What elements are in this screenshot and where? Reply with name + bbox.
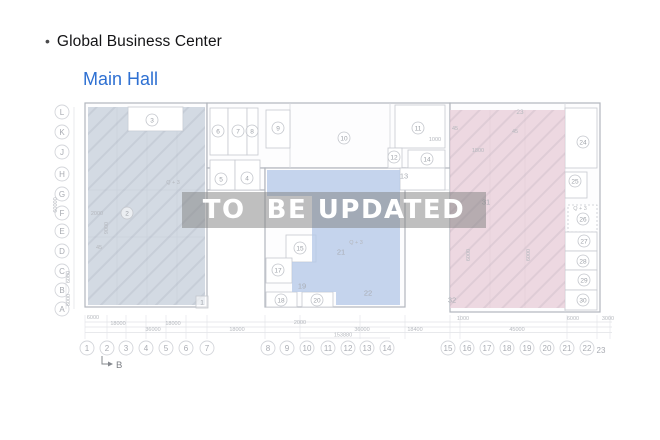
axis-letter: J	[60, 148, 64, 157]
axis-number: 13	[363, 344, 372, 353]
col-axis-3: 3	[119, 341, 133, 355]
room-number-text: 9	[276, 125, 280, 132]
room-label-10: 10	[338, 132, 350, 144]
room-label-24: 24	[577, 136, 589, 148]
room-number-text: 15	[296, 245, 304, 252]
row-axis-D: D	[55, 244, 69, 258]
room-label-5: 5	[215, 173, 227, 185]
col-axis-19: 19	[520, 341, 534, 355]
room-number-text: 22	[364, 288, 372, 297]
dimension-text-vertical: 9000	[104, 222, 110, 234]
room-number-text: 12	[390, 154, 398, 161]
axis-letter: B	[59, 286, 64, 295]
axis-number: 5	[164, 344, 169, 353]
room-label-11: 11	[412, 122, 424, 134]
dimension-text: 18000	[165, 321, 180, 327]
section-marker-b: B	[102, 356, 122, 371]
col-axis-2: 2	[100, 341, 114, 355]
plan-annotation: 23	[516, 109, 524, 116]
col-axis-23: 23	[597, 346, 606, 355]
section-marker-label: B	[116, 360, 122, 371]
room-number-text: 3	[150, 117, 154, 124]
room-label-26: 26	[577, 213, 589, 225]
col-axis-8: 8	[261, 341, 275, 355]
col-axis-12: 12	[341, 341, 355, 355]
col-axis-14: 14	[380, 341, 394, 355]
row-axis-H: H	[55, 167, 69, 181]
room-number-text: 1	[200, 299, 204, 306]
axis-number: 11	[324, 344, 333, 353]
axis-number: 19	[523, 344, 532, 353]
axis-number: 3	[124, 344, 129, 353]
plan-annotation: 45	[512, 129, 518, 135]
axis-number: 22	[583, 344, 592, 353]
plan-annotation: 1000	[429, 137, 441, 143]
dimension-text: 2000	[294, 320, 306, 326]
axis-letter: E	[59, 227, 64, 236]
dimension-text-vertical: 6000	[526, 249, 532, 261]
axis-number: 7	[205, 344, 210, 353]
room-number-text: 20	[313, 297, 321, 304]
plan-annotation: Q + 3	[349, 240, 363, 246]
room-label-20: 20	[311, 294, 323, 306]
room-label-13: 13	[400, 171, 408, 180]
dimension-text: 18400	[407, 327, 422, 333]
dimension-text: 18000	[110, 321, 125, 327]
dimension-text: 36000	[354, 327, 369, 333]
col-axis-17: 17	[480, 341, 494, 355]
dimension-text: 1000	[457, 316, 469, 322]
col-axis-4: 4	[139, 341, 153, 355]
room-number-text: 26	[579, 216, 587, 223]
axis-number: 20	[543, 344, 552, 353]
room-number-text: 18	[277, 297, 285, 304]
axis-number: 21	[563, 344, 572, 353]
col-axis-6: 6	[179, 341, 193, 355]
axis-number: 18	[503, 344, 512, 353]
col-axis-10: 10	[300, 341, 314, 355]
watermark-text: TO BE UPDATED	[203, 195, 466, 225]
room-number-text: 28	[579, 258, 587, 265]
axis-letter: A	[59, 305, 65, 314]
col-axis-1: 1	[80, 341, 94, 355]
room-number-text: 17	[274, 267, 282, 274]
room-number-text: 5	[219, 176, 223, 183]
plan-annotation: 1800	[472, 148, 484, 154]
room-number-text: 10	[340, 135, 348, 142]
room-number-text: 29	[580, 277, 588, 284]
axis-number: 12	[344, 344, 353, 353]
room-label-32: 32	[448, 295, 456, 304]
axis-number: 8	[266, 344, 271, 353]
col-axis-5: 5	[159, 341, 173, 355]
dimension-text: 6000	[567, 316, 579, 322]
col-axis-16: 16	[460, 341, 474, 355]
room-label-1: 1	[196, 296, 208, 308]
row-axis-K: K	[55, 125, 69, 139]
room-number-text: 24	[579, 139, 587, 146]
watermark-banner: TO BE UPDATED	[182, 192, 486, 228]
axis-number: 4	[144, 344, 149, 353]
room-number-text: 11	[415, 125, 422, 132]
axis-number: 6	[184, 344, 189, 353]
room-number-text: 14	[423, 156, 431, 163]
plan-annotation: 45	[452, 126, 458, 132]
room-number-text: 8	[250, 128, 254, 135]
col-axis-22: 22	[580, 341, 594, 355]
col-axis-7: 7	[200, 341, 214, 355]
room-label-25: 25	[569, 175, 581, 187]
axis-number: 1	[85, 344, 90, 353]
row-axis-J: J	[55, 145, 69, 159]
col-axis-20: 20	[540, 341, 554, 355]
row-axis-L: L	[55, 105, 69, 119]
room-label-14: 14	[421, 153, 433, 165]
axis-number: 15	[444, 344, 453, 353]
room-number-text: 4	[245, 175, 249, 182]
dimension-text-vertical: 6000	[66, 271, 72, 283]
room-label-17: 17	[272, 264, 284, 276]
dimension-text: 45000	[509, 327, 524, 333]
room-label-12: 12	[388, 151, 400, 163]
dimension-text-vertical: 60000	[53, 197, 59, 212]
col-axis-18: 18	[500, 341, 514, 355]
room-number-text: 25	[571, 178, 579, 185]
axis-letter: F	[60, 209, 65, 218]
axis-number: 10	[303, 344, 312, 353]
room-label-4: 4	[241, 172, 253, 184]
room-label-6: 6	[212, 125, 224, 137]
plan-annotation: Q + 3	[573, 206, 587, 212]
axis-letter: C	[59, 267, 65, 276]
plan-annotation: Q + 3	[166, 180, 180, 186]
room-label-22: 22	[364, 288, 372, 297]
dimension-text-vertical: 6000	[466, 249, 472, 261]
room-label-29: 29	[578, 274, 590, 286]
axis-number: 16	[463, 344, 472, 353]
room-number-text: 21	[337, 247, 345, 256]
room-number-text: 19	[298, 281, 306, 290]
room-label-9: 9	[272, 122, 284, 134]
room-label-19: 19	[298, 281, 306, 290]
axis-letter: K	[59, 128, 65, 137]
room-label-8: 8	[246, 125, 258, 137]
axis-letter: H	[59, 170, 65, 179]
col-axis-11: 11	[321, 341, 335, 355]
dimension-text: 36000	[145, 327, 160, 333]
axis-letter: G	[59, 190, 65, 199]
room-label-30: 30	[577, 294, 589, 306]
col-axis-9: 9	[280, 341, 294, 355]
row-axis-E: E	[55, 224, 69, 238]
axis-number: 9	[285, 344, 290, 353]
room-label-28: 28	[577, 255, 589, 267]
room-number-text: 32	[448, 295, 456, 304]
room-number-text: 30	[579, 297, 587, 304]
dimension-text: 153880	[334, 333, 352, 339]
room-number-text: 27	[580, 238, 588, 245]
axis-letter: D	[59, 247, 65, 256]
axis-letter: L	[60, 108, 65, 117]
col-axis-15: 15	[441, 341, 455, 355]
section-marker-arrow-icon	[108, 362, 113, 367]
col-axis-21: 21	[560, 341, 574, 355]
dimension-text: 3000	[602, 316, 614, 322]
dimension-text-vertical: 6000	[66, 294, 72, 306]
room-label-2: 2	[121, 207, 133, 219]
dimension-text: 18000	[229, 327, 244, 333]
section-marker-line	[102, 356, 108, 364]
plan-annotation: 45	[96, 245, 102, 251]
room-label-18: 18	[275, 294, 287, 306]
plan-annotation: 2000	[91, 211, 103, 217]
room-label-21: 21	[337, 247, 345, 256]
room-label-27: 27	[578, 235, 590, 247]
page: • Global Business Center Main Hall 12345…	[0, 0, 660, 440]
col-axis-13: 13	[360, 341, 374, 355]
room-label-3: 3	[146, 114, 158, 126]
room-number-text: 6	[216, 128, 220, 135]
room-label-7: 7	[232, 125, 244, 137]
dimension-text: 6000	[87, 315, 99, 321]
axis-number: 17	[483, 344, 492, 353]
room-number-text: 7	[236, 128, 240, 135]
axis-number: 14	[383, 344, 392, 353]
axis-number: 2	[105, 344, 110, 353]
room-label-15: 15	[294, 242, 306, 254]
room-number-text: 13	[400, 171, 408, 180]
room-number-text: 2	[125, 210, 129, 217]
